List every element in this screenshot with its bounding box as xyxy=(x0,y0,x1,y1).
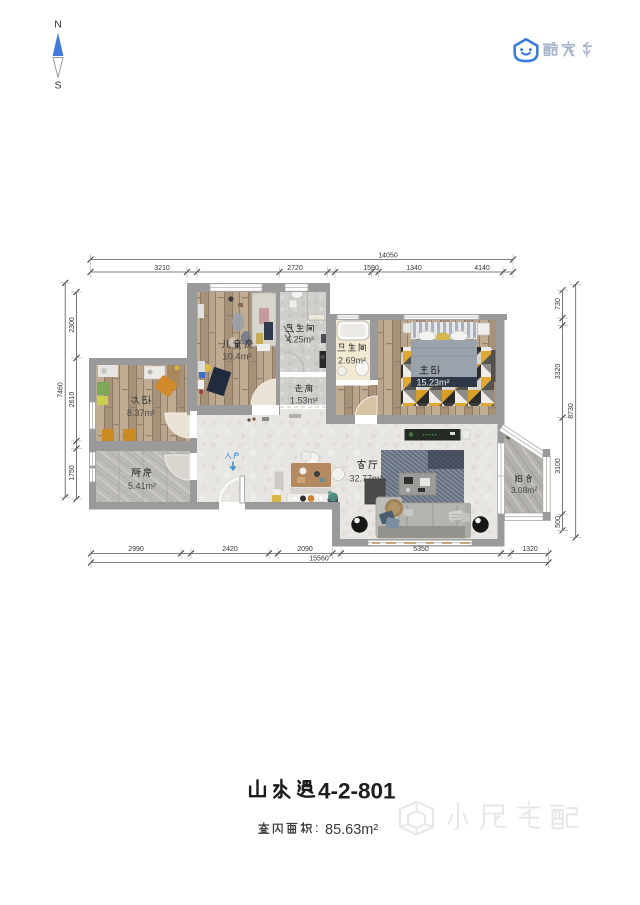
svg-text:1340: 1340 xyxy=(406,265,422,272)
svg-text:1590: 1590 xyxy=(363,265,379,272)
svg-text:3320: 3320 xyxy=(555,364,562,380)
svg-text:4-2-801: 4-2-801 xyxy=(318,779,396,804)
svg-text:1.53m²: 1.53m² xyxy=(290,396,318,406)
svg-text:2720: 2720 xyxy=(287,265,303,272)
svg-text:2300: 2300 xyxy=(69,317,76,333)
svg-text:2990: 2990 xyxy=(128,546,144,553)
svg-text:3.08m²: 3.08m² xyxy=(511,485,538,495)
svg-text:32.77m²: 32.77m² xyxy=(349,474,382,484)
svg-text:10.4m²: 10.4m² xyxy=(222,352,252,363)
svg-text:2420: 2420 xyxy=(222,546,238,553)
svg-text:1320: 1320 xyxy=(522,546,538,553)
svg-text:7460: 7460 xyxy=(58,382,65,398)
svg-text:4.25m²: 4.25m² xyxy=(286,335,314,345)
svg-text:5350: 5350 xyxy=(413,546,429,553)
svg-text:2.69m²: 2.69m² xyxy=(338,356,366,366)
svg-text:4140: 4140 xyxy=(474,265,490,272)
svg-text:1750: 1750 xyxy=(69,465,76,481)
svg-text:2610: 2610 xyxy=(69,392,76,408)
svg-text:2090: 2090 xyxy=(297,546,313,553)
svg-text:8.37m²: 8.37m² xyxy=(127,408,155,418)
svg-text:14050: 14050 xyxy=(378,252,398,259)
svg-text:85.63m²: 85.63m² xyxy=(325,822,378,838)
svg-text:730: 730 xyxy=(555,298,562,310)
svg-text:S: S xyxy=(54,80,61,92)
svg-text::: : xyxy=(315,820,319,835)
svg-text:500: 500 xyxy=(555,516,562,528)
svg-text:15560: 15560 xyxy=(309,555,329,562)
svg-text:3100: 3100 xyxy=(555,458,562,474)
svg-text:3210: 3210 xyxy=(154,265,170,272)
svg-text:15.23m²: 15.23m² xyxy=(416,378,449,388)
svg-text:5.41m²: 5.41m² xyxy=(128,481,156,491)
svg-text:N: N xyxy=(54,19,62,31)
svg-text:8730: 8730 xyxy=(568,403,575,419)
